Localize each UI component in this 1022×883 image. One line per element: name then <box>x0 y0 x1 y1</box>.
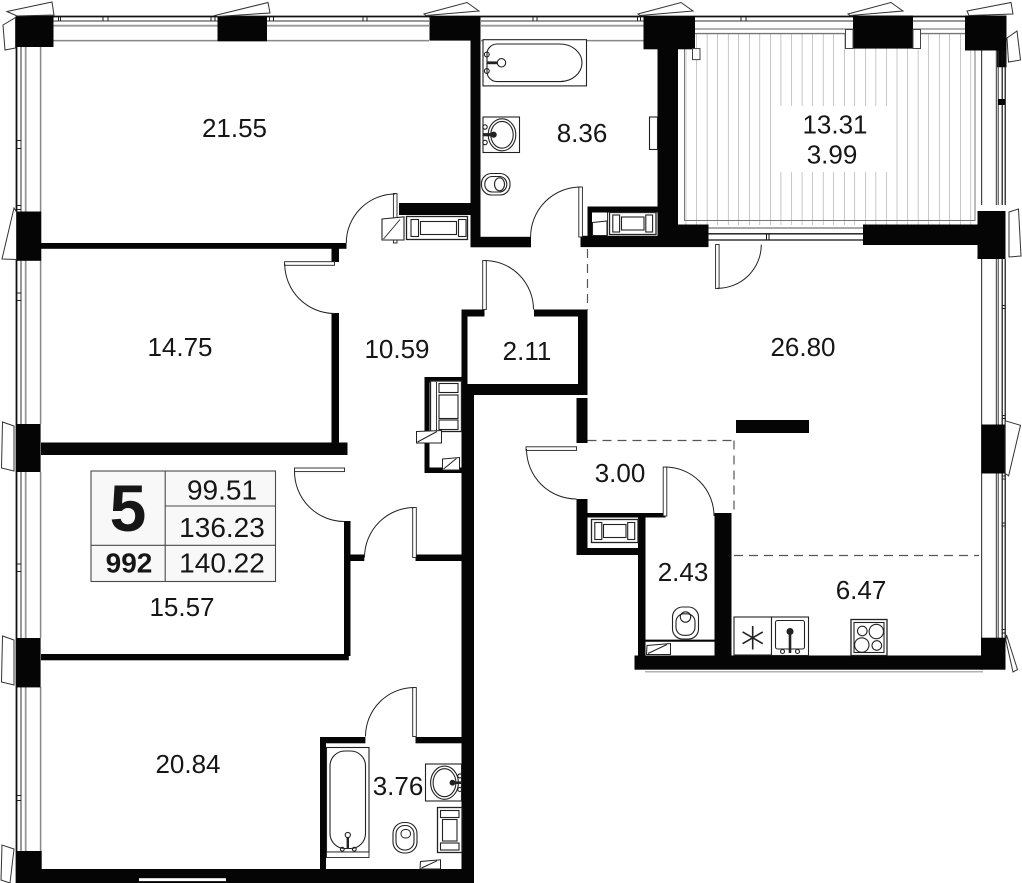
svg-text:8.36: 8.36 <box>557 118 608 148</box>
svg-text:2.43: 2.43 <box>658 557 709 587</box>
svg-text:140.22: 140.22 <box>179 547 265 578</box>
svg-text:992: 992 <box>106 547 153 578</box>
svg-text:2.11: 2.11 <box>503 336 552 366</box>
svg-text:3.99: 3.99 <box>807 140 858 170</box>
svg-text:6.47: 6.47 <box>836 575 887 605</box>
svg-text:3.76: 3.76 <box>373 771 424 801</box>
svg-text:26.80: 26.80 <box>770 332 835 362</box>
svg-text:136.23: 136.23 <box>179 512 265 543</box>
svg-text:13.31: 13.31 <box>802 110 867 140</box>
svg-text:15.57: 15.57 <box>149 592 214 622</box>
svg-text:99.51: 99.51 <box>187 475 257 506</box>
svg-text:10.59: 10.59 <box>364 334 429 364</box>
svg-text:14.75: 14.75 <box>147 332 212 362</box>
svg-text:20.84: 20.84 <box>155 749 220 779</box>
svg-text:21.55: 21.55 <box>202 113 267 143</box>
svg-text:5: 5 <box>110 471 147 545</box>
svg-text:3.00: 3.00 <box>595 458 646 488</box>
